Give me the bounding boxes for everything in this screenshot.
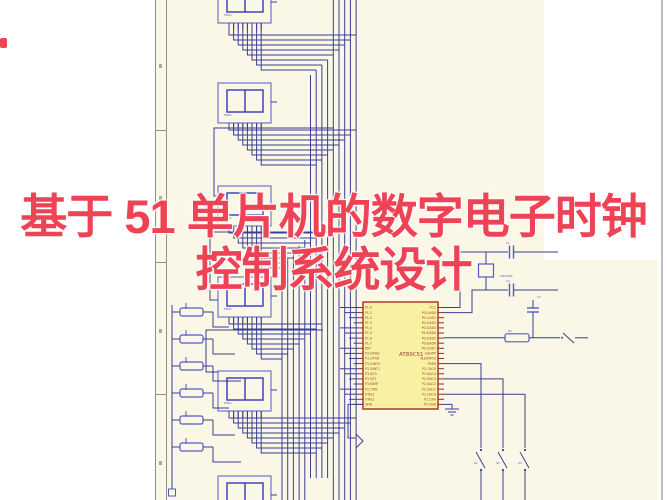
svg-text:7SEG: 7SEG bbox=[224, 307, 233, 311]
svg-text:P2.1/A9: P2.1/A9 bbox=[424, 398, 436, 402]
svg-text:C1: C1 bbox=[506, 241, 510, 245]
svg-text:P0.5/AD5: P0.5/AD5 bbox=[422, 336, 436, 340]
ground-icon bbox=[444, 404, 459, 415]
resistor[interactable] bbox=[172, 330, 235, 354]
svg-text:P0.1/AD1: P0.1/AD1 bbox=[422, 316, 436, 320]
svg-text:P1.3: P1.3 bbox=[365, 321, 372, 325]
resistor[interactable] bbox=[172, 303, 229, 327]
svg-text:P3.7/RD: P3.7/RD bbox=[365, 387, 378, 391]
svg-text:S1: S1 bbox=[474, 461, 478, 465]
display-fanout-wires bbox=[229, 411, 356, 453]
display-fanout-wires bbox=[229, 23, 356, 70]
resistor[interactable] bbox=[172, 384, 229, 408]
svg-text:P2.5/A13: P2.5/A13 bbox=[422, 377, 436, 381]
svg-text:P1.6: P1.6 bbox=[365, 336, 372, 340]
svg-text:VCC: VCC bbox=[430, 306, 436, 310]
svg-text:S2: S2 bbox=[496, 461, 500, 465]
svg-text:EA/VPP: EA/VPP bbox=[425, 352, 436, 356]
svg-text:S3: S3 bbox=[518, 461, 522, 465]
schematic-canvas[interactable]: 7SEG7SEG7SEG7SEG7SEG7SEGP1.0VCCP1.1P0.0/… bbox=[0, 0, 667, 500]
chip-pin-wires bbox=[340, 308, 357, 405]
capacitor[interactable]: C2 bbox=[506, 279, 514, 297]
svg-text:P3.4/T0: P3.4/T0 bbox=[365, 372, 377, 376]
svg-text:C2: C2 bbox=[506, 279, 510, 283]
crystal-circuit bbox=[444, 252, 558, 313]
switch[interactable] bbox=[561, 333, 588, 343]
svg-text:CRYSTAL: CRYSTAL bbox=[500, 274, 513, 278]
schematic-page: 7SEG7SEG7SEG7SEG7SEG7SEGP1.0VCCP1.1P0.0/… bbox=[0, 0, 667, 500]
switch[interactable]: S1 bbox=[444, 364, 485, 500]
svg-text:P0.3/AD3: P0.3/AD3 bbox=[422, 326, 436, 330]
svg-text:P0.6/AD6: P0.6/AD6 bbox=[422, 341, 436, 345]
svg-text:P3.6/WR: P3.6/WR bbox=[365, 382, 379, 386]
svg-text:XTAL1: XTAL1 bbox=[365, 398, 375, 402]
svg-text:GND: GND bbox=[365, 403, 373, 407]
svg-text:P3.0/RXD: P3.0/RXD bbox=[365, 352, 380, 356]
svg-text:R1: R1 bbox=[508, 329, 512, 333]
svg-text:P1.2: P1.2 bbox=[365, 316, 372, 320]
svg-text:XTAL2: XTAL2 bbox=[365, 392, 375, 396]
svg-text:P3.5/T1: P3.5/T1 bbox=[365, 377, 377, 381]
bus-wires bbox=[206, 0, 356, 500]
seven-segment-display[interactable]: 7SEG bbox=[218, 186, 277, 233]
display-fanout-wires bbox=[229, 123, 356, 165]
resistor[interactable] bbox=[172, 438, 241, 462]
svg-text:P0.4/AD4: P0.4/AD4 bbox=[422, 331, 436, 335]
svg-text:P2.3/A11: P2.3/A11 bbox=[422, 387, 436, 391]
svg-text:P3.2/INT0: P3.2/INT0 bbox=[365, 362, 380, 366]
svg-text:P1.7: P1.7 bbox=[365, 341, 372, 345]
svg-text:C3: C3 bbox=[537, 295, 541, 299]
switch[interactable]: S3 bbox=[444, 394, 529, 500]
svg-text:P2.4/A12: P2.4/A12 bbox=[422, 382, 436, 386]
svg-text:P1.5: P1.5 bbox=[365, 331, 372, 335]
seven-segment-display[interactable]: 7SEG bbox=[218, 83, 277, 130]
svg-text:P2.2/A10: P2.2/A10 bbox=[422, 392, 436, 396]
svg-text:PSEN: PSEN bbox=[428, 362, 437, 366]
capacitor[interactable]: C1 bbox=[506, 241, 514, 259]
svg-text:P0.0/AD0: P0.0/AD0 bbox=[422, 311, 436, 315]
seven-segment-display[interactable]: 7SEG bbox=[218, 371, 277, 418]
seven-segment-display[interactable]: 7SEG bbox=[218, 476, 277, 500]
svg-text:P3.1/TXD: P3.1/TXD bbox=[365, 357, 380, 361]
svg-text:7SEG: 7SEG bbox=[224, 401, 233, 405]
svg-text:P2.6/A14: P2.6/A14 bbox=[422, 372, 436, 376]
reset-circuit bbox=[444, 300, 560, 338]
svg-text:P2.7/A15: P2.7/A15 bbox=[422, 367, 436, 371]
resistor-rail bbox=[169, 305, 176, 496]
svg-text:AT89C51: AT89C51 bbox=[399, 352, 424, 358]
page-border bbox=[661, 0, 663, 500]
svg-text:P1.0: P1.0 bbox=[365, 306, 372, 310]
crystal[interactable]: CRYSTAL bbox=[479, 264, 514, 278]
svg-text:P0.2/AD2: P0.2/AD2 bbox=[422, 321, 436, 325]
switch[interactable]: S2 bbox=[444, 379, 507, 500]
sheet-border-ruler bbox=[155, 0, 167, 500]
resistor[interactable]: R1 bbox=[505, 329, 529, 342]
svg-text:RST: RST bbox=[365, 347, 371, 351]
svg-text:P2.0/A8: P2.0/A8 bbox=[424, 403, 436, 407]
svg-text:7SEG: 7SEG bbox=[224, 113, 233, 117]
svg-text:P3.3/INT1: P3.3/INT1 bbox=[365, 367, 380, 371]
mcu-chip[interactable]: P1.0VCCP1.1P0.0/AD0P1.2P0.1/AD1P1.3P0.2/… bbox=[357, 302, 444, 409]
svg-text:P0.7/AD7: P0.7/AD7 bbox=[422, 347, 436, 351]
svg-text:7SEG: 7SEG bbox=[224, 216, 233, 220]
svg-text:P1.1: P1.1 bbox=[365, 311, 372, 315]
svg-text:7SEG: 7SEG bbox=[224, 13, 233, 17]
capacitor[interactable]: C3 bbox=[527, 295, 541, 312]
display-fanout-wires bbox=[229, 317, 322, 359]
seven-segment-display[interactable]: 7SEG bbox=[218, 277, 277, 324]
svg-text:P1.4: P1.4 bbox=[365, 326, 372, 330]
resistor[interactable] bbox=[172, 411, 235, 435]
